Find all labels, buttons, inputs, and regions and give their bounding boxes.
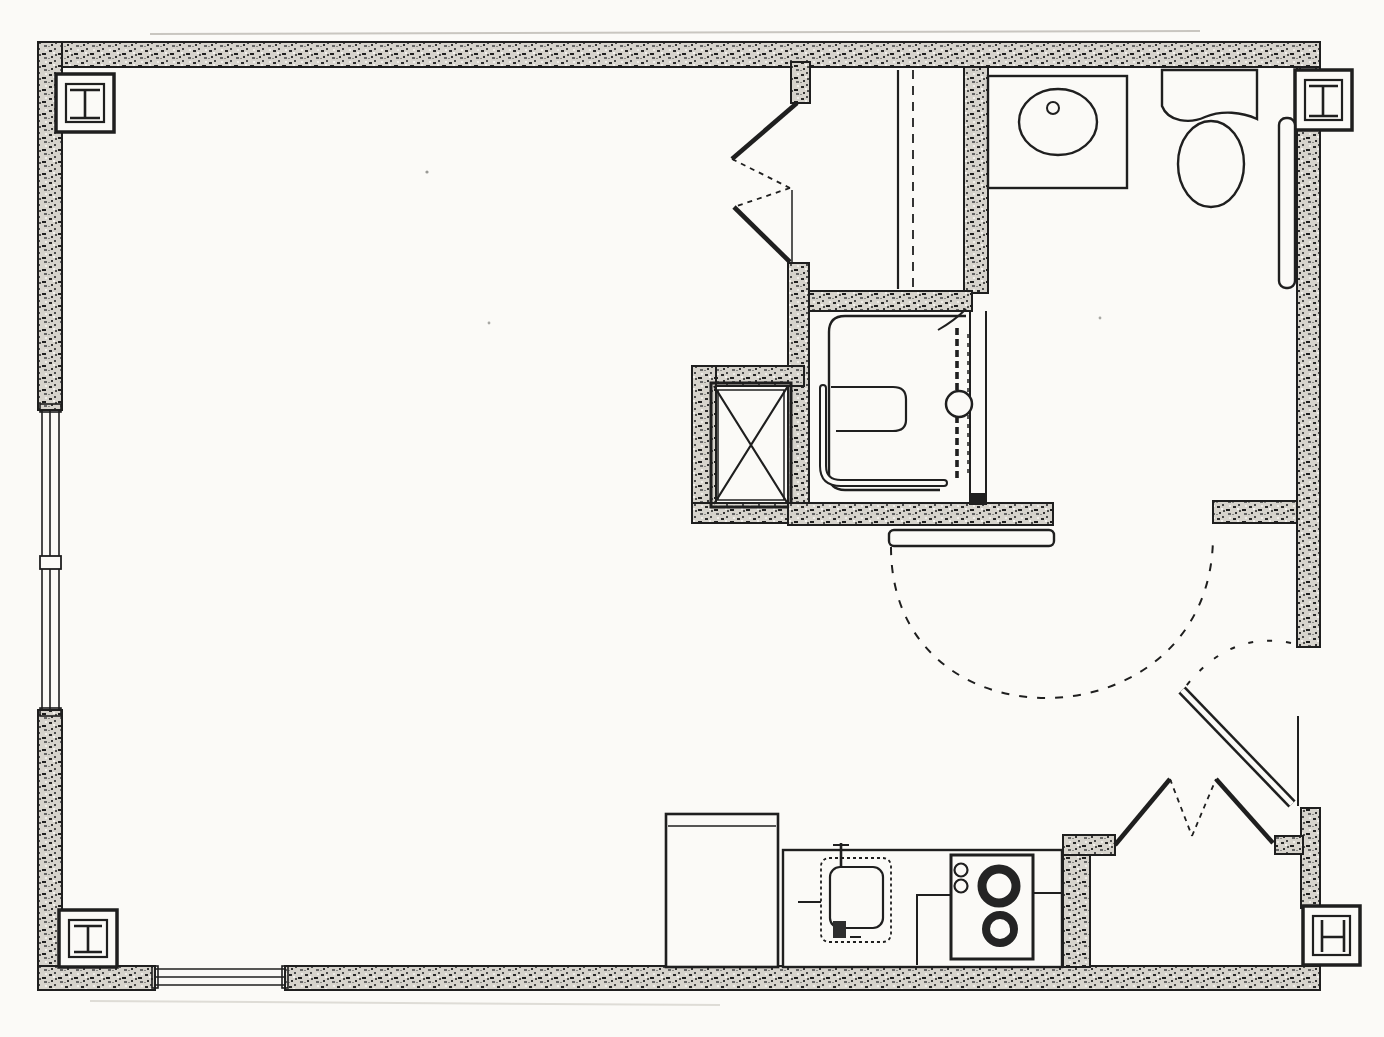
- burner-highlight: [998, 877, 1010, 889]
- window-mullion: [40, 556, 61, 569]
- bifold-leaf: [734, 207, 790, 262]
- bathroom: [988, 70, 1297, 523]
- scan-smudge-bottom: [90, 1001, 720, 1005]
- toilet-bowl: [1178, 121, 1244, 207]
- closet-south-wall: [809, 291, 972, 311]
- partition-end-block: [969, 493, 987, 505]
- bifold-leaf: [732, 103, 797, 159]
- toilet-tank: [1162, 70, 1257, 121]
- sink-drain: [1047, 102, 1059, 114]
- bathroom-south-stub: [1213, 501, 1297, 523]
- window-bottom: [152, 966, 288, 988]
- bottom-wall-left: [38, 966, 155, 990]
- grab-bar: [823, 388, 944, 483]
- kitchen: [666, 814, 1090, 967]
- door-swing-arc: [891, 536, 1213, 698]
- floor-plan-canvas: [0, 0, 1384, 1037]
- bifold-fold-line: [1192, 779, 1216, 836]
- closet-jamb-top: [791, 62, 810, 103]
- bifold-fold-line: [732, 159, 790, 188]
- refrigerator: [666, 814, 778, 967]
- cooktop: [951, 855, 1033, 959]
- disposal: [833, 921, 846, 938]
- bottom-wall-main: [285, 966, 1320, 990]
- vanity-sink: [988, 76, 1127, 188]
- closet-east-wall: [964, 67, 988, 293]
- entry-bifold-doors: [1115, 779, 1273, 845]
- column-top-right: [1295, 70, 1352, 130]
- closet: [732, 62, 988, 523]
- toilet: [1162, 70, 1257, 207]
- entry-closet-jamb-left: [1063, 835, 1115, 855]
- bifold-fold-line: [1170, 779, 1192, 836]
- wall-panel: [1279, 118, 1295, 288]
- right-wall-upper: [1297, 67, 1320, 647]
- shower-valve: [946, 391, 972, 417]
- bifold-leaf: [1115, 779, 1170, 845]
- bathroom-south-wall: [788, 503, 1053, 525]
- column-top-left: [56, 74, 114, 132]
- entry-door: [1182, 641, 1298, 806]
- column-bottom-right: [1303, 906, 1360, 965]
- bathroom-door: [889, 530, 1213, 698]
- grab-bar-core: [823, 388, 944, 483]
- scan-smudge-top: [150, 31, 1200, 34]
- shower-head-arc: [938, 309, 966, 330]
- sink-basin: [1019, 89, 1097, 155]
- shower-seat: [831, 387, 906, 431]
- scan-speck: [425, 170, 428, 173]
- entry-closet-jamb-right: [1275, 836, 1303, 854]
- window-left: [40, 404, 61, 716]
- column-bottom-left: [59, 910, 117, 967]
- door-swing-arc: [1183, 641, 1291, 690]
- bifold-leaf: [1216, 779, 1273, 843]
- knob: [955, 880, 968, 893]
- door-leaf-open: [889, 530, 1054, 546]
- top-wall: [38, 42, 1320, 67]
- bifold-fold-line: [734, 188, 790, 207]
- door-leaf-core: [1182, 690, 1292, 804]
- shaft-x: [714, 386, 788, 504]
- entry: [1063, 641, 1303, 855]
- scan-speck: [488, 322, 491, 325]
- scan-speck: [1099, 317, 1102, 320]
- right-wall-entry-stub: [1301, 808, 1320, 908]
- closet-bifold-doors: [732, 103, 797, 262]
- shower: [788, 309, 1053, 525]
- knob: [955, 864, 968, 877]
- burner-highlight: [1000, 926, 1010, 936]
